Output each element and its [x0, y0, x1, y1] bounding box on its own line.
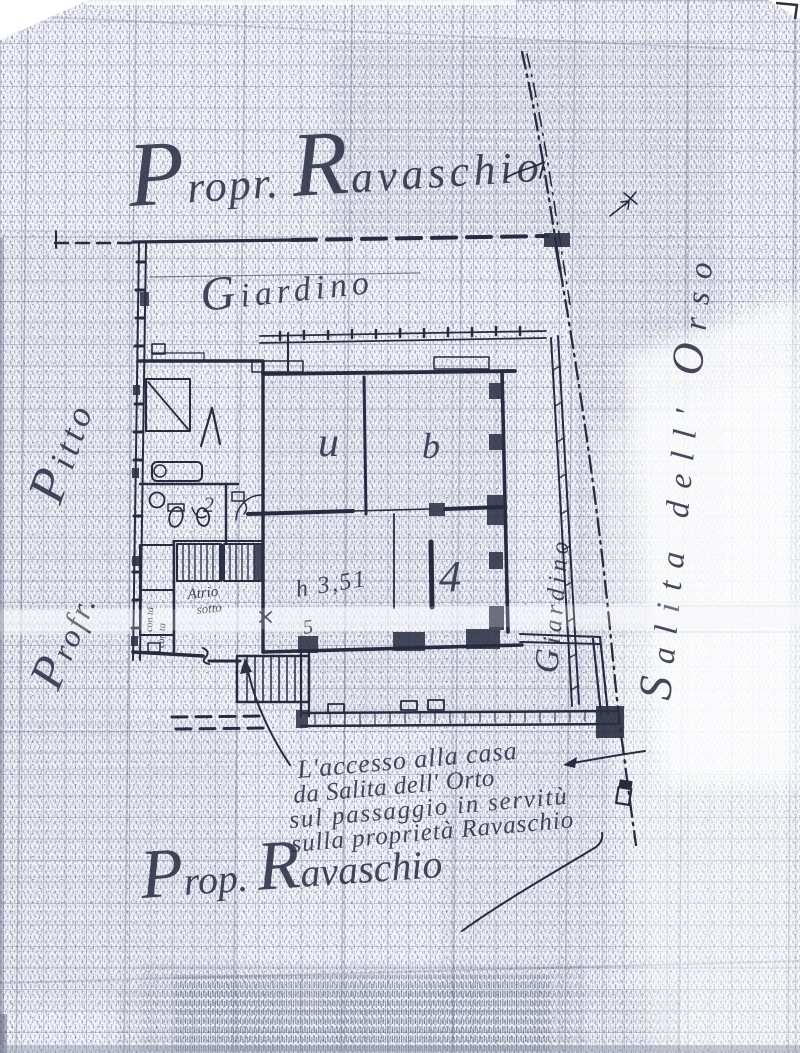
svg-text:2: 2: [203, 492, 214, 517]
svg-text:b: b: [422, 426, 440, 466]
svg-text:4: 4: [439, 552, 461, 601]
svg-text:u: u: [318, 420, 339, 466]
